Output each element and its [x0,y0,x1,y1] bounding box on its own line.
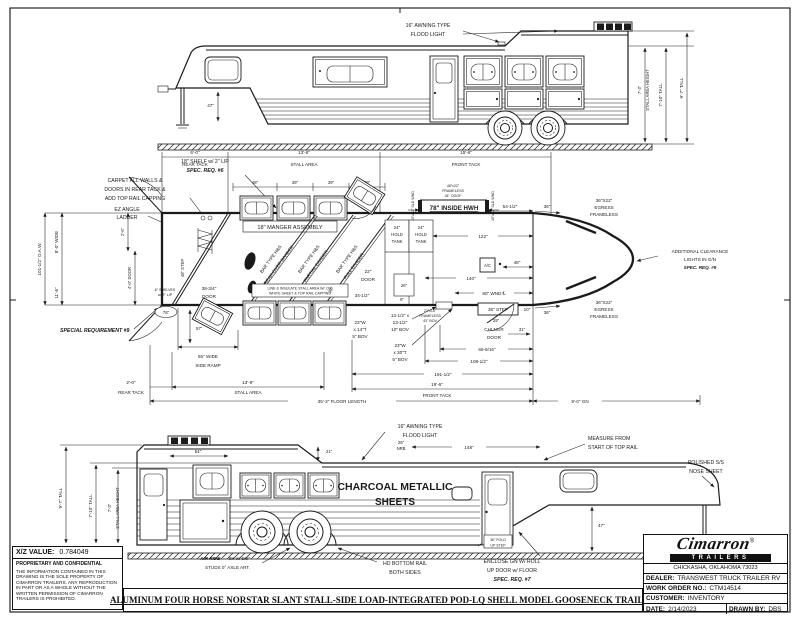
door-22-label-2: DOOR [361,277,375,282]
escape-door-panel [313,57,387,87]
wheel-1 [488,111,522,145]
egress-top-2: EGRESS [594,205,613,210]
xz-label: X/Z VALUE: [16,549,54,556]
bov-13-3: 10" BOV [391,327,410,332]
nrb-2: NRB [397,446,406,451]
stall-bot-2: STALL AREA [234,390,262,395]
gooseneck-window [205,57,241,83]
measure-callout: MEASURE FROM START OF TOP RAIL [544,436,638,460]
nose-2: NOSE SHEET [689,469,723,475]
shelves-note-1: 6" SHELVES [155,288,176,292]
dim-front-tack-top-2: FRONT TACK [452,162,482,167]
measure-1: MEASURE FROM [588,436,630,442]
dim-stall-top-1: 13'-9" [298,150,310,155]
nrb-1: 26" [398,440,405,445]
brand-logo: Cimarron® TRAILERS [644,535,787,564]
tank2-1: 24" [418,225,425,230]
dim-9-7-tall: 9'-7" TALL [58,487,63,508]
door-22-label-1: 22" [365,269,372,274]
ramp-note-2: SIDE RAMP [195,363,220,368]
dim-31: 31" [519,327,526,332]
dim-21: 21" [326,449,333,454]
tank1-3: TANK [392,239,403,244]
bov-22-15-2: FRAMELESS [419,314,441,318]
work-order-value: CTM14514 [709,585,741,592]
air-ride-bold: AIR RIDE [199,556,221,561]
roof-vents [594,22,632,31]
air-ride-2: STUDS 0° AXLE ART. [205,565,250,570]
chlngr-3: DOOR [487,335,501,340]
carpet-note-3: ADD TOP RAIL CAPPING [105,196,165,202]
dim-rear-tack-top-2: REAR TACK [182,162,209,167]
manger-dim-39b: 39" [328,180,335,185]
dim-stall-height-2: STALL AREA HEIGHT [645,69,650,111]
dim-2-6: 2'-6" [120,227,125,236]
fold-step-2: UP STEP [490,544,506,548]
ramp-note-1: 65" WIDE [198,354,218,359]
dim-34-5: 34-1/2" [355,293,370,298]
ogof-note-3: 34" OGOF [445,194,463,198]
side-window-1 [243,301,276,325]
gooseneck-coupler [158,86,168,92]
dim-148: 148" [464,445,474,450]
drawing-canvas: 47" 16" AWNING TYPE FLOOD LIGHT [0,0,800,618]
egress-top-3: FRAMELESS [590,212,618,217]
bov-23-14-2: x 14"T [353,327,366,332]
bov-23-30-3: 5" BOV [392,357,408,362]
dim-9-7-tall: 9'-7" TALL [679,77,684,98]
dim-10: 10" [524,307,531,312]
sld-wnd-right: 15"x22" SLD WND [491,191,495,221]
dim-66: 66-9/16" [478,347,496,352]
date-row: DATE: 2/14/2023 DRAWN BY: DBS [644,604,787,614]
front-tack-bot-2: FRONT TACK [423,393,453,398]
drawing-title-bar: ALUMINUM FOUR HORSE NORSTAR SLANT STALL-… [123,588,643,612]
rear-door [140,469,167,540]
dim-108: 108-1/2" [470,359,488,364]
special-req-callout: SPECIAL REQUIREMENT #9 [60,308,158,334]
side-window-2 [278,301,311,325]
dim-191: 191-1/2" [434,372,452,377]
xz-value-block: X/Z VALUE: 0.784049 PROPRIETARY AND CONF… [12,546,123,610]
street-elevation-view: 36" FOLD UP STEP CHARCOAL METALLIC SHEET… [58,424,728,583]
landing-jack [176,88,189,128]
liner-note-2: WHITE SHEET & TOP RAIL CAPPING [269,292,331,296]
framed-stall-window [193,465,231,498]
work-order-row: WORK ORDER NO.: CTM14514 [644,584,787,594]
rail-1: HD BOTTOM RAIL [383,561,427,567]
special-req-label: SPECIAL REQUIREMENT #9 [60,328,129,334]
drop-door-2 [505,89,543,109]
brand-address: CHICKASHA, OKLAHOMA 73023 [644,564,787,574]
egress-bot-2: EGRESS [594,307,613,312]
rear-tack-bot-2: REAR TACK [118,390,145,395]
ladder-note-1: EZ ANGLE [114,207,140,213]
tank1-2: HOLD [391,232,403,237]
manger-1 [240,196,273,220]
dim-80-wnd: 80" WND ℄ [482,291,506,296]
front-tack-bot-1: 19'-6" [431,382,443,387]
fold-step-1: 36" FOLD [490,538,506,542]
floor-plan-view: 18" SHELF w/ 2" LIP SPEC. REQ. #6 CARPET… [37,150,728,405]
dim-57: 57" [196,326,203,331]
bottom-rail-callout: HD BOTTOM RAIL BOTH SIDES [338,548,427,576]
dim-36-bottom: 36" [544,310,551,315]
charcoal-1: CHARCOAL METALLIC [337,481,453,493]
stall-window-1 [240,473,271,498]
clearance-lights-callout: ADDITIONAL CLEARANCE LIGHTS IN G/N SPEC.… [637,249,728,270]
oval-78-label: 78" [163,310,170,315]
nose-1: POLISHED S/S [688,460,725,466]
wheel-2 [531,111,565,145]
drop-door-3 [546,89,584,109]
dim-8-wide: 8'-0" WIDE [54,231,59,253]
flood-light-label-2: FLOOD LIGHT [411,32,446,38]
dealer-row: DEALER: TRANSWEST TRUCK TRAILER RV [644,574,787,584]
clearance-3: SPEC. REQ. #9 [684,265,717,270]
manger-assembly-label: 18" MANGER ASSEMBLY [257,225,323,231]
work-order-label: WORK ORDER NO.: [646,585,706,592]
dim-rear-tack-top-1: 6'-0" [190,150,200,155]
step-48-label: 48" STEP [180,259,185,277]
charcoal-2: SHEETS [375,497,415,508]
stall-window-3 [308,473,339,498]
brand-name: Cimarron [675,535,751,552]
dim-7-10-tall: 7'-10" TALL [658,83,663,107]
stall-window-2 [505,56,543,87]
dim-140: 140" [466,276,476,281]
bov-23-14-3: 5" BOV [352,334,368,339]
bov-23-30-1: 23"W [394,343,406,348]
lq-door: 36" FOLD UP STEP [482,472,513,548]
drawing-sheet: 47" 16" AWNING TYPE FLOOD LIGHT [0,0,800,618]
small-window [452,487,472,500]
awning-flood-light-fixture [498,42,505,45]
manger-3 [314,196,347,220]
manger-4-open [344,177,385,215]
open-drop-door [180,500,230,542]
gooseneck-drop-dim: 47" [207,92,218,121]
dim-stall-top-2: STALL AREA [290,162,318,167]
brand-sub: TRAILERS [670,554,771,562]
dim-54: 54" [195,449,202,454]
chlngr-1: 29" [493,318,500,323]
egress-bot-3: FRAMELESS [590,314,618,319]
proprietary-title: PROPRIETARY AND CONFIDENTIAL [16,561,119,567]
side-access-door [430,56,458,122]
dim-26: 26" [401,283,408,288]
flood-light-label-1: 16" AWNING TYPE [406,23,451,29]
enclose-3: SPEC. REQ. #7 [494,577,532,583]
dim-48: 48" [514,260,521,265]
rail-2: BOTH SIDES [389,570,421,576]
air-ride-rest: - 9K w/ 5/8" [226,556,250,561]
dim-36-top: 36" [544,204,551,209]
bov-13-2: 13-1/2" [393,320,408,325]
dim-6: 6" [400,297,404,302]
side-window-3 [313,301,346,325]
proprietary-body: THE INFORMATION CONTAINED IN THIS DRAWIN… [16,569,119,602]
egress-bot-1: 36"X22" [596,300,613,305]
title-block: Cimarron® TRAILERS CHICKASHA, OKLAHOMA 7… [643,534,788,612]
date-value: 2/14/2023 [668,606,696,613]
stall-window-1 [464,56,502,87]
ac-label: A/C [484,263,491,268]
xz-value: 0.784049 [59,549,88,556]
dim-122: 122" [478,234,488,239]
bov-13-1: 13-1/2" x [391,313,410,318]
tank2-2: HOLD [415,232,427,237]
stall-bot-1: 13'-9" [242,380,254,385]
dim-stall-height-1: 7'-3" [107,503,112,512]
enclose-1: ENCLOSE GN W/ ROLL [484,559,541,565]
wheel-2 [289,511,331,553]
manger-2 [277,196,310,220]
shelves-note-2: w/ 2" LIP [158,293,173,297]
ladder-note-2: LADDER [116,215,137,221]
manger-dim-48: 48" [252,180,259,185]
drawing-title: ALUMINUM FOUR HORSE NORSTAR SLANT STALL-… [110,595,656,605]
customer-row: CUSTOMER: INVENTORY [644,594,787,604]
shelf-note-2: SPEC. REQ. #6 [187,168,224,174]
measure-2: START OF TOP RAIL [588,445,638,451]
step-36-label: 36" STEP [488,307,508,312]
customer-label: CUSTOMER: [646,595,685,602]
dim-gn: 9'-0" GN [571,399,588,404]
dim-front-tack-top-1: 15'-6" [460,150,472,155]
date-label: DATE: [646,606,665,613]
dim-7-10-tall: 7'-10" TALL [88,494,93,518]
dim-oaw: 101-1/2" O.A.W. [37,242,42,275]
inside-hwh-label: 78" INSIDE HWH [430,205,479,212]
flood-light-1: 16" AWNING TYPE [398,424,443,430]
tank1-1: 24" [394,225,401,230]
drawn-by-value: DBS [768,606,781,613]
rear-tack-bot-1: 2'-0" [126,380,136,385]
chlngr-2: CHLNGR [484,327,504,332]
dim-floor-length: 35'-3" FLOOR LENGTH [318,399,367,404]
bov-22-15-3: 43" BOV [423,319,437,323]
drawn-by-label: DRAWN BY: [729,606,765,613]
dim-47: 47" [598,523,605,528]
dim-47: 47" [207,103,214,108]
flood-light-2: FLOOD LIGHT [403,433,438,439]
dim-4-door: 4'-0" DOOR [127,267,132,289]
stall-window-2 [274,473,305,498]
tank2-3: TANK [416,239,427,244]
manger-dim-39a: 39" [292,180,299,185]
enclose-2: UP DOOR w/ FLOOR [487,568,537,574]
front-tack-openings: 22"x15" FRAMELESS 43" BOV 36" STEP 10" 2… [419,302,531,340]
gooseneck-window [560,470,597,492]
sld-wnd-left: 15"x22" SLD WND [411,191,415,221]
height-dimensions: 7'-3" STALL AREA HEIGHT 7'-10" TALL 9'-7… [628,31,694,144]
stall-window-3 [546,56,584,87]
bov-23-14-1: 23"W [354,320,366,325]
liner-note-1: LINE & INSULATE STALL AREA W/ .090 [267,287,332,291]
bov-23-30-2: x 30"T [393,350,406,355]
dim-11-6: 11'-6" [54,287,59,299]
gn-drop-dim: 47" [592,507,605,551]
ogof-note-1: 48"x22" [447,184,460,188]
dim-54-5: 54-1/2" [503,204,518,209]
clearance-1: ADDITIONAL CLEARANCE [672,249,729,254]
ogof-note-2: FRAMELESS [442,189,464,193]
dim-stall-height-1: 7'-3" [637,85,642,94]
top-elevation-view: 47" 16" AWNING TYPE FLOOD LIGHT [158,22,694,150]
egress-top-1: 36"X22" [596,198,613,203]
clearance-2: LIGHTS IN G/N [684,257,716,262]
dealer-value: TRANSWEST TRUCK TRAILER RV [677,575,780,582]
customer-value: INVENTORY [688,595,725,602]
dealer-label: DEALER: [646,575,674,582]
dim-stall-height-2: STALL AREA HEIGHT [115,487,120,529]
roof-vents [168,436,210,445]
wheel-1 [241,511,283,553]
drop-door-1 [464,89,502,109]
door-3834-1: 38-3/4" [202,286,217,291]
